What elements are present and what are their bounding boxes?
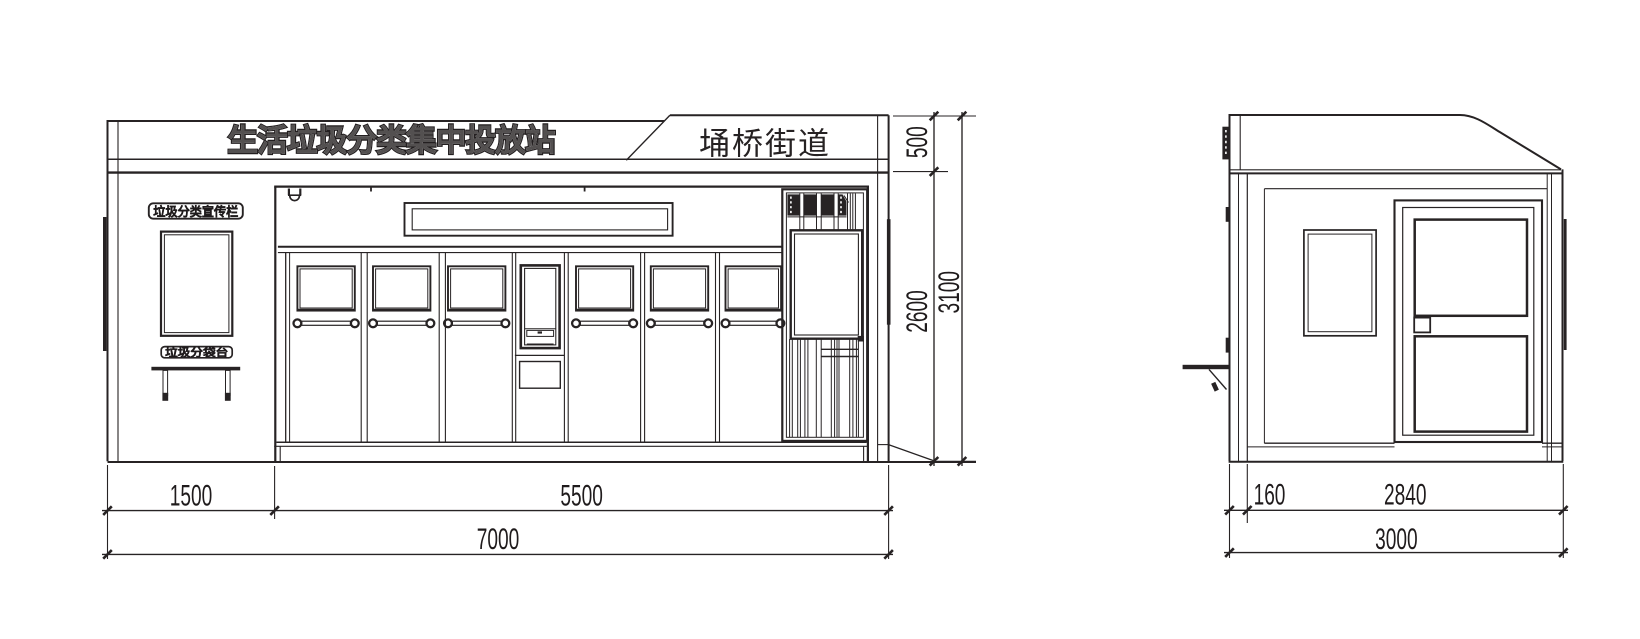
svg-text:垃圾分类宣传栏: 垃圾分类宣传栏 xyxy=(153,204,238,219)
svg-text:生活垃圾分类集中投放站: 生活垃圾分类集中投放站 xyxy=(228,124,556,158)
svg-text:垃圾分袋台: 垃圾分袋台 xyxy=(165,346,228,359)
svg-text:7000: 7000 xyxy=(477,523,520,556)
svg-text:3000: 3000 xyxy=(1375,523,1418,556)
svg-text:5500: 5500 xyxy=(560,479,603,512)
svg-text:2600: 2600 xyxy=(901,290,934,333)
svg-text:1500: 1500 xyxy=(170,479,213,512)
svg-text:500: 500 xyxy=(901,126,934,158)
svg-text:3100: 3100 xyxy=(933,271,966,314)
svg-text:160: 160 xyxy=(1254,479,1286,512)
svg-text:2840: 2840 xyxy=(1384,479,1427,512)
svg-text:埇桥街道: 埇桥街道 xyxy=(699,127,829,162)
